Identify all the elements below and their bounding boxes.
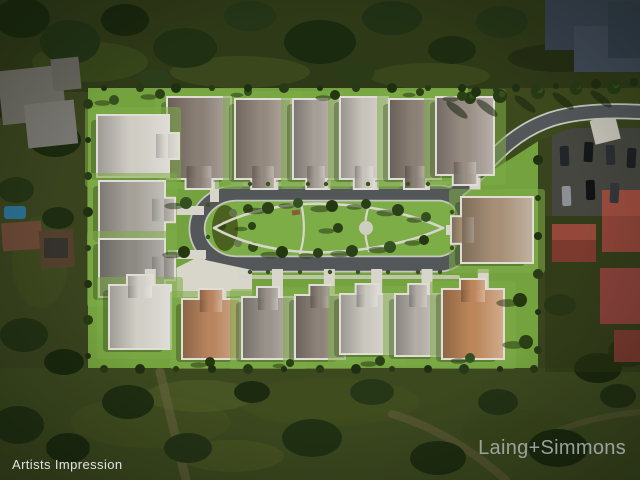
detail-layer [0,0,640,480]
artists-impression-caption: Artists Impression [12,457,123,472]
photo-vignette [0,0,640,480]
laing-simmons-watermark: Laing+Simmons [478,437,626,460]
aerial-render [0,0,640,480]
aerial-photo: Artists Impression Laing+Simmons [0,0,640,480]
